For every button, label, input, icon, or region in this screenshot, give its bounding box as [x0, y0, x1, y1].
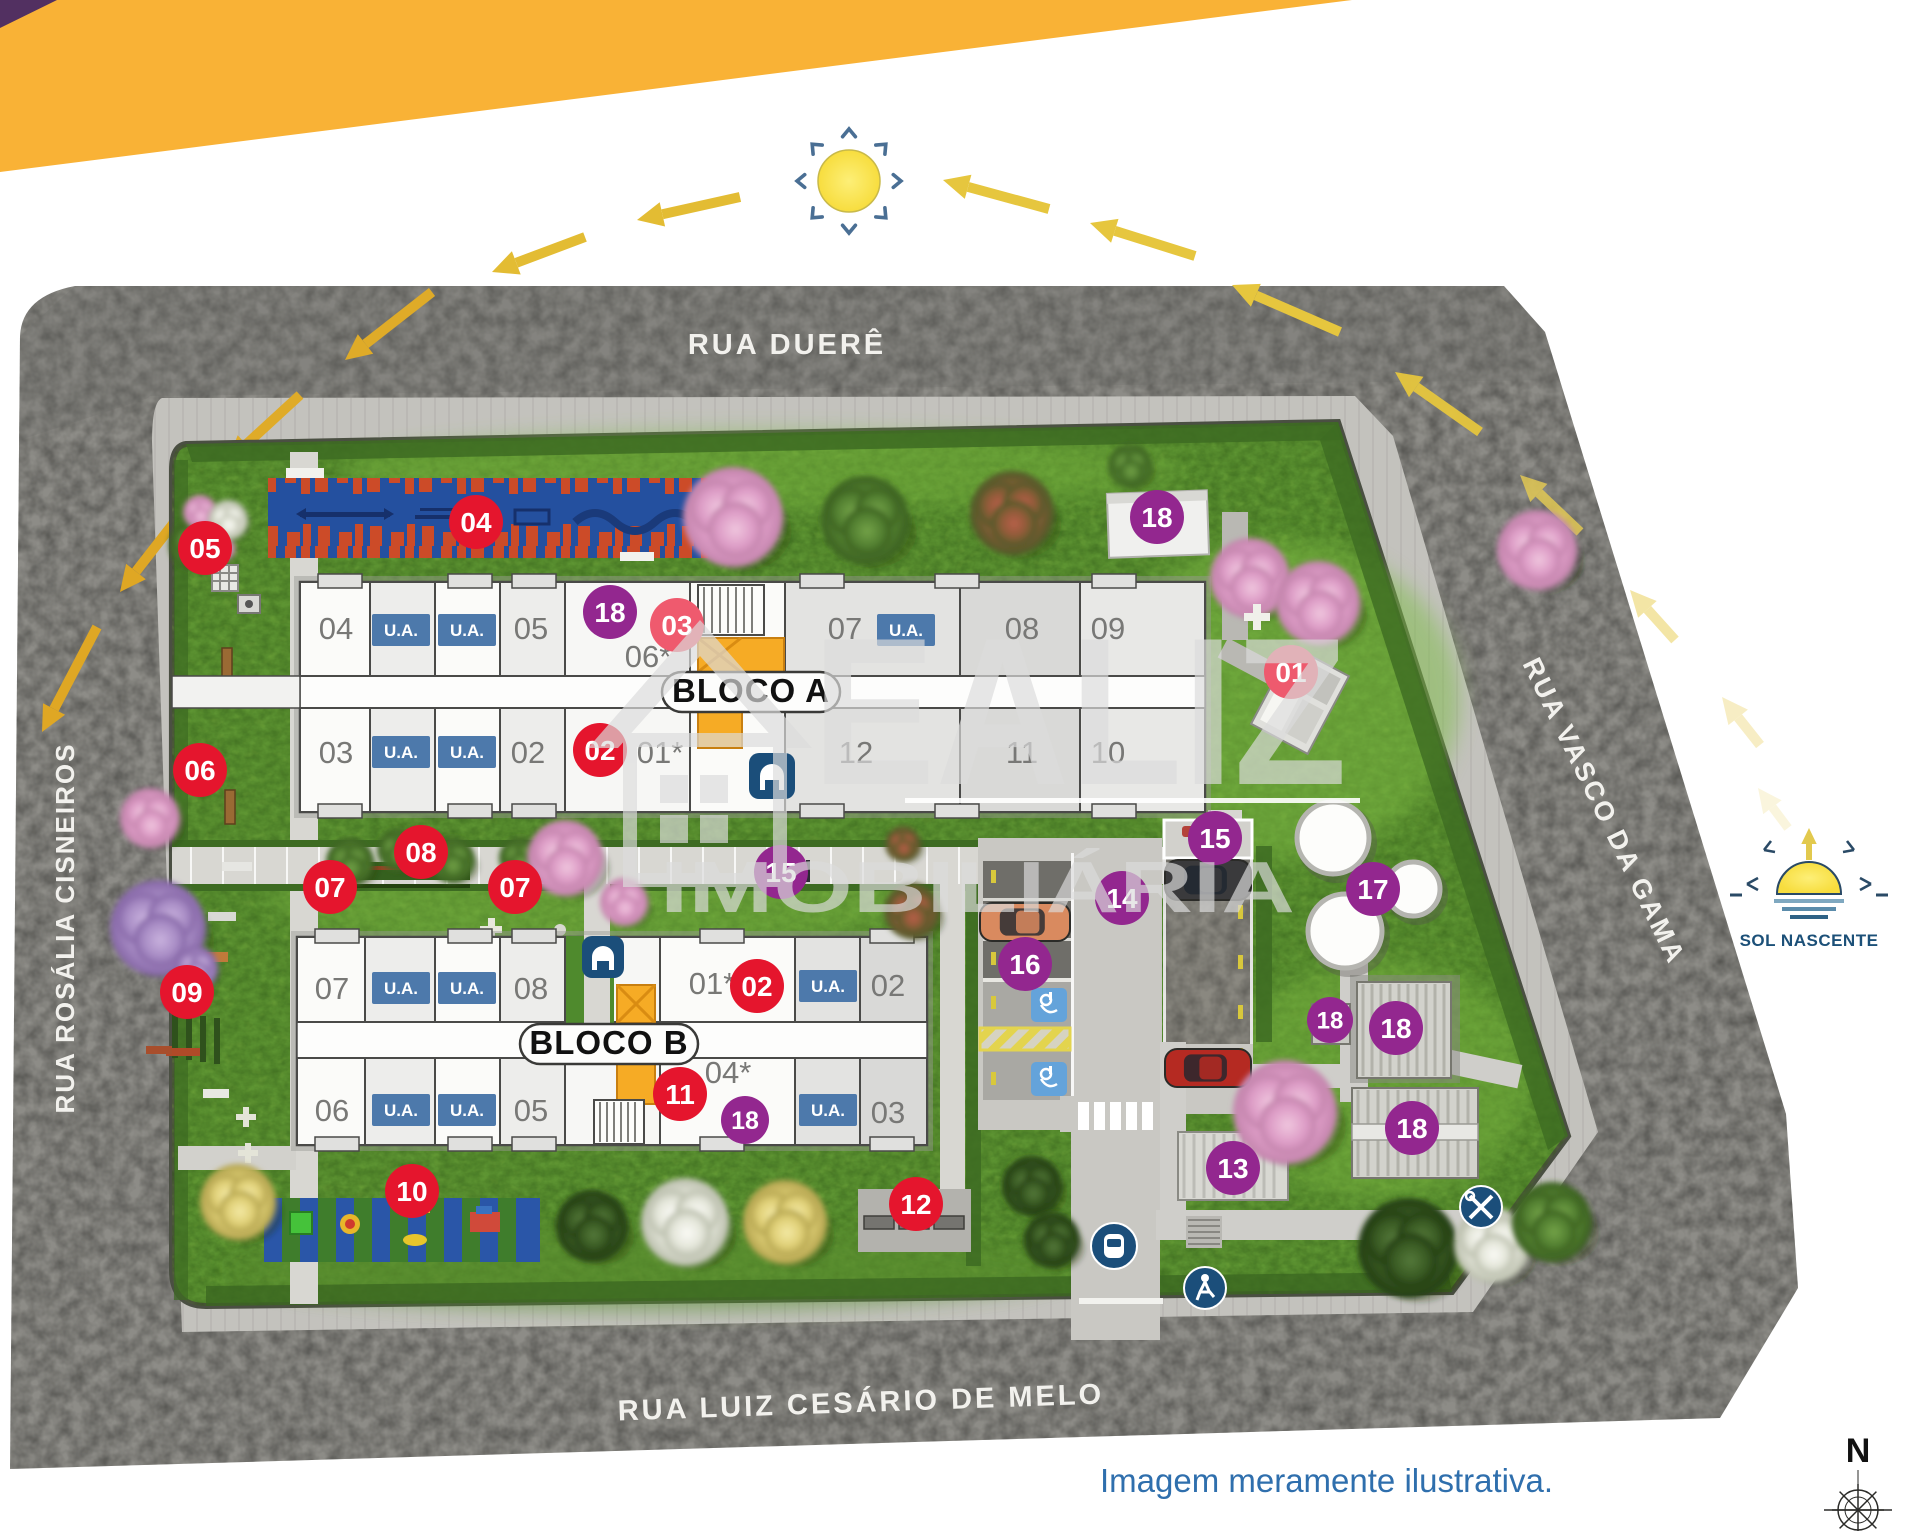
svg-text:11: 11: [665, 1079, 695, 1110]
svg-text:U.A.: U.A.: [384, 1101, 418, 1120]
svg-text:05: 05: [514, 611, 548, 646]
svg-text:18: 18: [1380, 1013, 1411, 1044]
svg-text:IMOBILIÁRIA: IMOBILIÁRIA: [660, 848, 1295, 928]
svg-text:U.A.: U.A.: [450, 743, 484, 762]
svg-text:08: 08: [514, 971, 548, 1006]
svg-text:03: 03: [871, 1095, 905, 1130]
svg-text:02: 02: [741, 971, 772, 1002]
svg-text:01*: 01*: [689, 966, 736, 1001]
svg-text:U.A.: U.A.: [450, 621, 484, 640]
svg-text:SOL NASCENTE: SOL NASCENTE: [1740, 931, 1879, 950]
svg-text:12: 12: [900, 1189, 931, 1220]
svg-text:10: 10: [396, 1176, 427, 1207]
svg-text:04: 04: [319, 611, 353, 646]
svg-text:EALIZ: EALIZ: [812, 594, 1347, 829]
svg-text:U.A.: U.A.: [450, 979, 484, 998]
svg-text:02: 02: [511, 735, 545, 770]
svg-text:18: 18: [594, 597, 625, 628]
svg-text:03: 03: [319, 735, 353, 770]
svg-text:U.A.: U.A.: [811, 977, 845, 996]
svg-text:18: 18: [1141, 502, 1172, 533]
svg-text:RUA DUERÊ: RUA DUERÊ: [688, 327, 886, 361]
svg-text:02: 02: [871, 968, 905, 1003]
svg-text:08: 08: [405, 837, 436, 868]
svg-text:04: 04: [460, 507, 492, 538]
svg-text:18: 18: [731, 1107, 759, 1135]
svg-text:07: 07: [315, 971, 349, 1006]
svg-text:13: 13: [1217, 1153, 1248, 1184]
svg-text:U.A.: U.A.: [384, 979, 418, 998]
svg-text:17: 17: [1357, 874, 1388, 905]
svg-text:16: 16: [1009, 949, 1040, 980]
svg-text:U.A.: U.A.: [384, 743, 418, 762]
svg-text:09: 09: [171, 977, 202, 1008]
svg-text:04*: 04*: [705, 1055, 752, 1090]
svg-text:BLOCO B: BLOCO B: [529, 1024, 688, 1061]
svg-text:U.A.: U.A.: [811, 1101, 845, 1120]
svg-text:05: 05: [189, 533, 220, 564]
svg-text:05: 05: [514, 1093, 548, 1128]
svg-text:U.A.: U.A.: [384, 621, 418, 640]
svg-text:18: 18: [1396, 1113, 1427, 1144]
svg-text:07: 07: [314, 872, 345, 903]
svg-text:U.A.: U.A.: [450, 1101, 484, 1120]
svg-text:06: 06: [315, 1093, 349, 1128]
svg-text:N: N: [1846, 1432, 1871, 1470]
svg-text:RUA ROSÁLIA CISNEIROS: RUA ROSÁLIA CISNEIROS: [50, 743, 80, 1114]
svg-text:Imagem meramente ilustrativa.: Imagem meramente ilustrativa.: [1100, 1462, 1553, 1499]
svg-text:18: 18: [1317, 1007, 1344, 1034]
svg-text:07: 07: [499, 872, 530, 903]
svg-text:06: 06: [184, 755, 215, 786]
